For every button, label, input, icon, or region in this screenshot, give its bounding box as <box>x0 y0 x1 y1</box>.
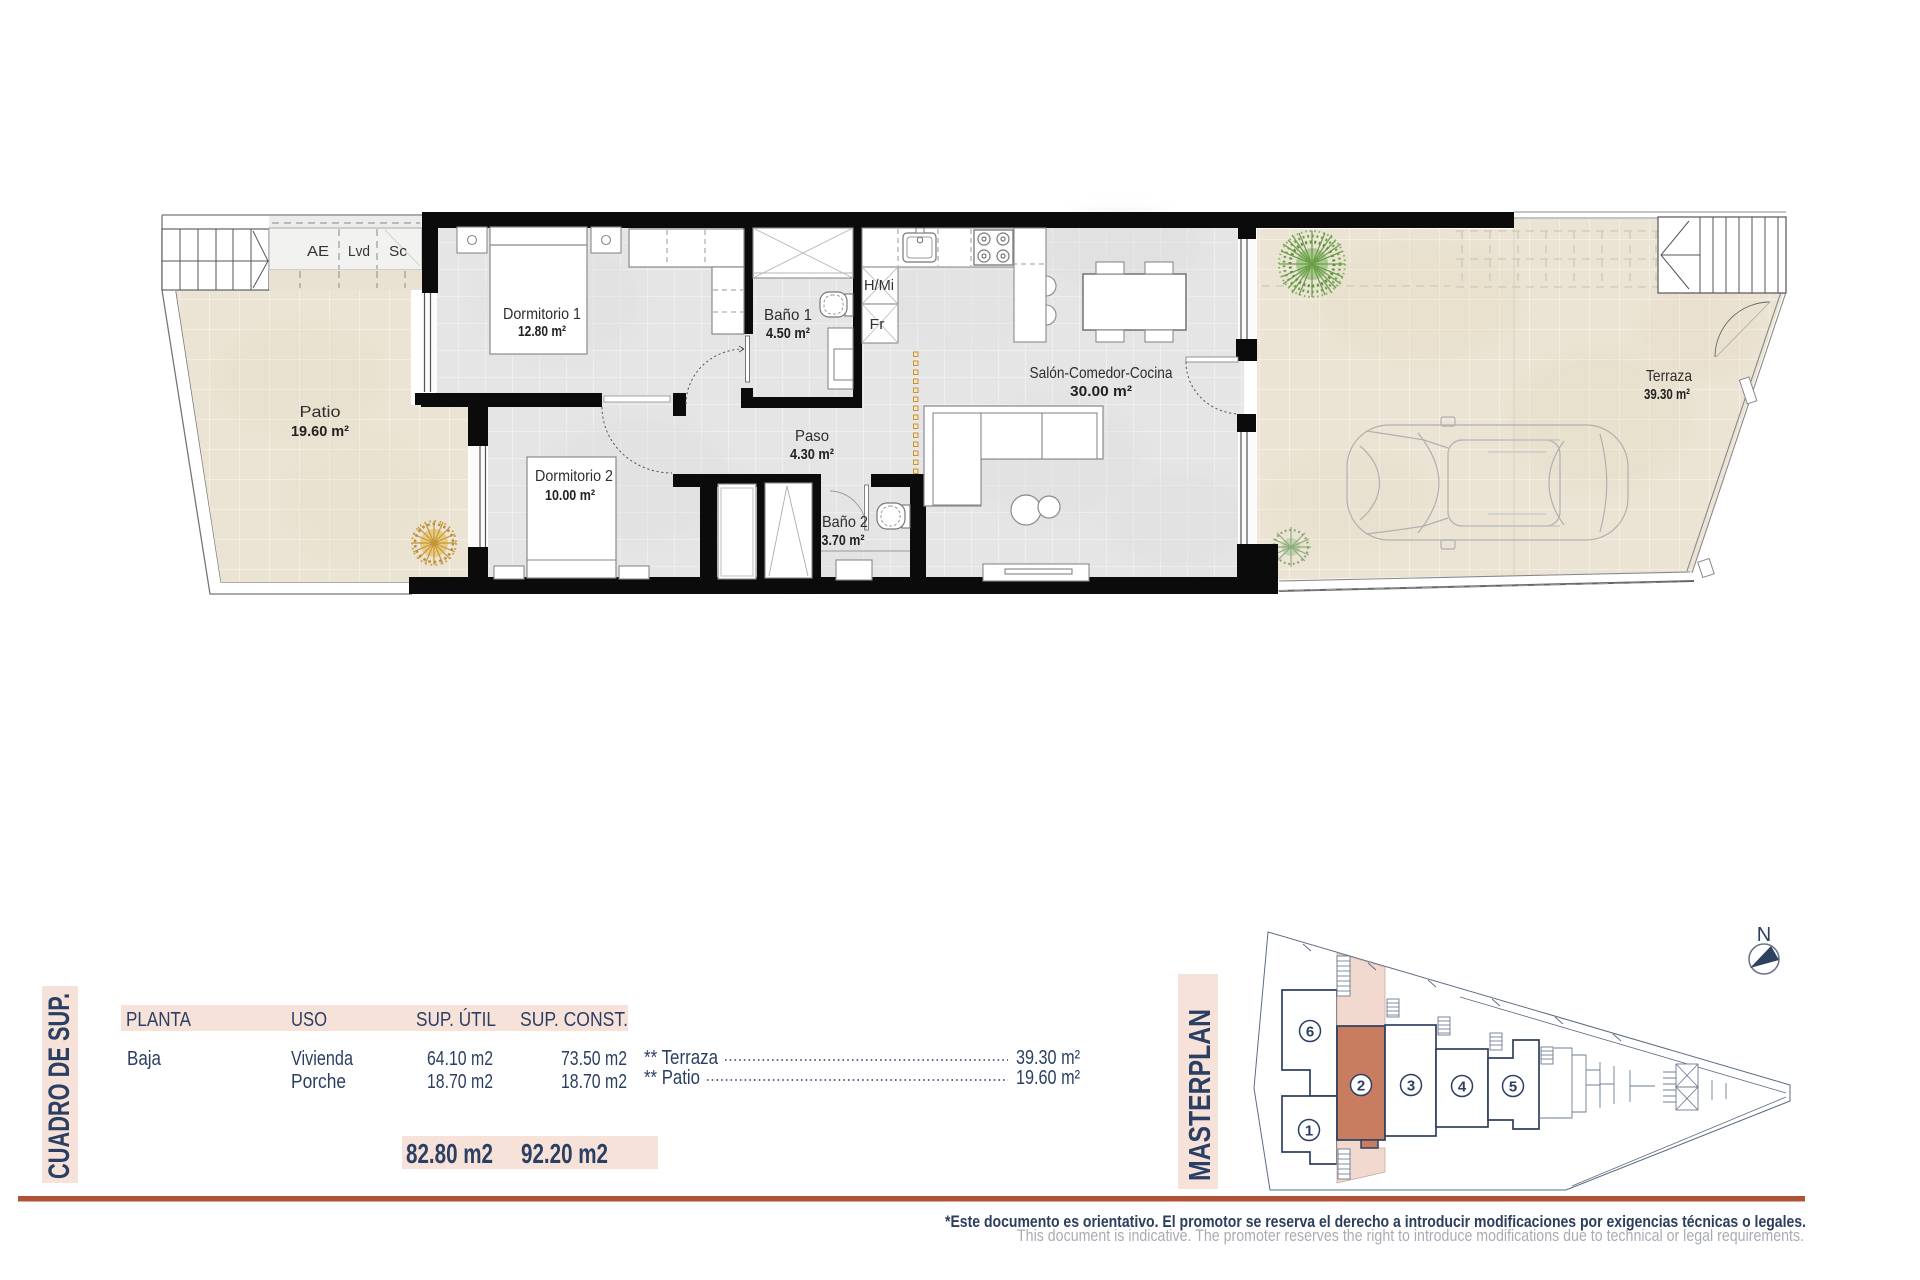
svg-text:3: 3 <box>1407 1078 1415 1095</box>
svg-text:39.30 m²: 39.30 m² <box>1016 1047 1080 1069</box>
svg-text:Sc: Sc <box>389 243 408 260</box>
svg-text:AE: AE <box>307 243 329 260</box>
svg-text:10.00 m²: 10.00 m² <box>545 487 595 504</box>
svg-text:Lvd: Lvd <box>348 243 370 260</box>
svg-text:Terraza: Terraza <box>1646 368 1692 385</box>
svg-text:N: N <box>1757 924 1771 946</box>
svg-text:64.10 m2: 64.10 m2 <box>427 1048 493 1070</box>
svg-text:Fr: Fr <box>870 316 885 333</box>
svg-text:82.80 m2: 82.80 m2 <box>406 1138 493 1169</box>
svg-text:Dormitorio 1: Dormitorio 1 <box>503 306 581 323</box>
svg-text:Salón-Comedor-Cocina: Salón-Comedor-Cocina <box>1030 365 1173 382</box>
svg-text:SUP. ÚTIL: SUP. ÚTIL <box>416 1008 496 1031</box>
svg-text:Porche: Porche <box>291 1071 346 1093</box>
svg-text:Baño 1: Baño 1 <box>764 307 812 324</box>
svg-text:30.00 m²: 30.00 m² <box>1070 383 1132 400</box>
svg-text:Paso: Paso <box>795 428 829 445</box>
svg-text:Dormitorio 2: Dormitorio 2 <box>535 468 613 485</box>
svg-text:18.70 m2: 18.70 m2 <box>561 1071 627 1093</box>
svg-text:39.30 m²: 39.30 m² <box>1644 386 1690 403</box>
svg-text:1: 1 <box>1305 1123 1313 1140</box>
svg-text:USO: USO <box>291 1009 327 1031</box>
svg-text:PLANTA: PLANTA <box>126 1009 192 1031</box>
svg-text:This document is indicative. T: This document is indicative. The promote… <box>1017 1226 1804 1245</box>
svg-text:4: 4 <box>1458 1079 1467 1096</box>
svg-text:18.70 m2: 18.70 m2 <box>427 1071 493 1093</box>
svg-text:92.20 m2: 92.20 m2 <box>521 1138 608 1169</box>
svg-text:** Patio: ** Patio <box>644 1067 700 1089</box>
svg-text:Baño 2: Baño 2 <box>822 514 868 531</box>
svg-text:** Terraza: ** Terraza <box>644 1047 719 1069</box>
svg-text:12.80 m²: 12.80 m² <box>518 323 566 340</box>
svg-text:Patio: Patio <box>300 404 341 421</box>
svg-text:MASTERPLAN: MASTERPLAN <box>1182 1009 1217 1181</box>
svg-text:3.70 m²: 3.70 m² <box>822 532 865 549</box>
svg-text:73.50 m2: 73.50 m2 <box>561 1048 627 1070</box>
svg-text:CUADRO DE SUP.: CUADRO DE SUP. <box>43 993 76 1179</box>
svg-text:19.60 m²: 19.60 m² <box>291 423 349 440</box>
svg-text:5: 5 <box>1509 1079 1517 1096</box>
svg-text:6: 6 <box>1306 1024 1314 1041</box>
svg-text:19.60 m²: 19.60 m² <box>1016 1067 1080 1089</box>
svg-text:Vivienda: Vivienda <box>291 1048 354 1070</box>
svg-text:4.30 m²: 4.30 m² <box>790 446 834 463</box>
svg-text:Baja: Baja <box>127 1048 162 1070</box>
svg-text:2: 2 <box>1357 1078 1365 1095</box>
svg-text:4.50 m²: 4.50 m² <box>766 325 810 342</box>
svg-text:H/Mi: H/Mi <box>864 277 894 294</box>
svg-text:SUP. CONST.: SUP. CONST. <box>520 1009 628 1031</box>
